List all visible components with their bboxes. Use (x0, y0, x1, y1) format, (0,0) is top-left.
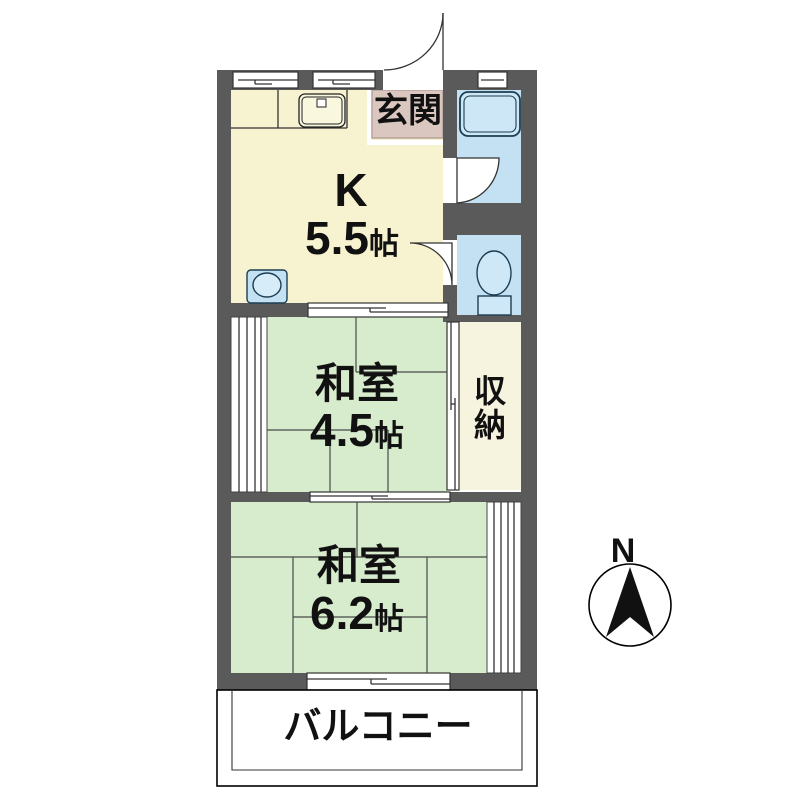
japanese-room-middle-label: 和室 (315, 360, 399, 407)
sliding-door-mid-bottom (310, 492, 450, 502)
kitchen-area-unit: 帖 (369, 228, 399, 261)
wall-mid-bottom-left (217, 492, 310, 502)
bottom-area-value: 6.2 (310, 587, 374, 639)
toilet-icon (477, 251, 511, 315)
bathtub-icon (460, 92, 520, 136)
entrance-door (383, 13, 443, 90)
north-label: N (611, 532, 636, 570)
window-kitchen-right (313, 72, 375, 88)
sliding-door-storage (447, 322, 459, 490)
mid-area-value: 4.5 (310, 404, 374, 456)
wall-bottom-left (217, 673, 307, 690)
mid-area-unit: 帖 (374, 420, 404, 453)
window-bathroom (478, 72, 507, 88)
storage-label-top: 収 (474, 373, 506, 409)
wall-bottom-right (450, 673, 537, 690)
balcony-label: バルコニー (283, 706, 472, 748)
floor-plan: N K 5.5帖 玄関 和室 4.5帖 和室 6.2帖 収 納 バルコニー (0, 0, 800, 800)
wall-kitchen-mid-left (231, 303, 308, 317)
wall-left (217, 70, 231, 690)
kitchen-area-value: 5.5 (305, 212, 369, 264)
window-kitchen-left (233, 72, 298, 88)
window-band-bottom-room (487, 502, 521, 673)
wall-wet-column-1 (443, 70, 457, 158)
japanese-room-bottom-label: 和室 (317, 542, 401, 589)
entrance-door-arc (384, 13, 443, 70)
wall-bath-toilet (443, 203, 521, 235)
floor-plan-page: N K 5.5帖 玄関 和室 4.5帖 和室 6.2帖 収 納 バルコニー (0, 0, 800, 800)
bottom-area-unit: 帖 (374, 603, 404, 636)
sink-icon (299, 94, 345, 127)
wall-mid-bottom-right (450, 492, 537, 502)
storage-label-bottom: 納 (474, 407, 506, 443)
sliding-window-balcony (307, 673, 450, 690)
bathroom-door-opening (443, 158, 457, 203)
entrance-opening (383, 70, 443, 90)
kitchen-label: K (334, 164, 367, 216)
entrance-label: 玄関 (374, 92, 442, 130)
washing-machine-icon (247, 270, 287, 303)
entrance-step-bottom (367, 140, 443, 145)
window-band-mid-room (231, 317, 267, 492)
sliding-door-kitchen-mid (308, 303, 448, 317)
wall-right (521, 70, 537, 690)
compass-north: N (589, 532, 671, 646)
wall-toilet-storage (443, 315, 521, 322)
